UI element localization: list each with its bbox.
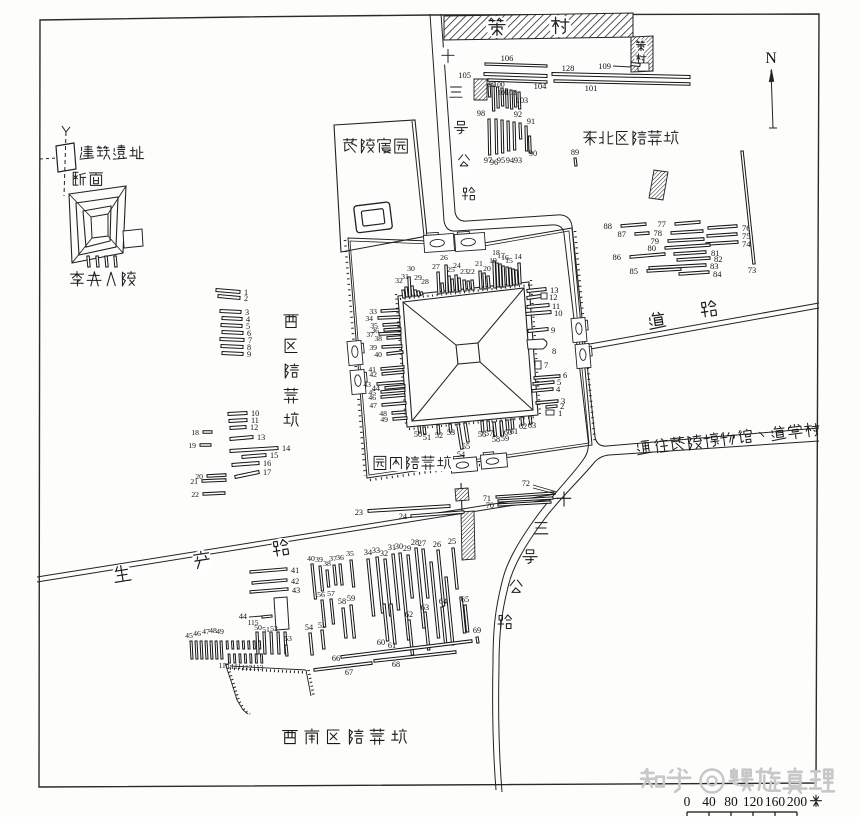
- svg-text:62: 62: [405, 610, 413, 619]
- svg-text:29: 29: [403, 544, 411, 553]
- svg-text:0: 0: [684, 794, 691, 809]
- svg-text:128: 128: [562, 63, 575, 73]
- svg-text:27: 27: [418, 539, 426, 548]
- svg-text:40: 40: [307, 554, 315, 563]
- svg-text:53: 53: [284, 634, 292, 643]
- svg-text:200: 200: [787, 794, 808, 809]
- svg-text:73: 73: [748, 265, 757, 275]
- svg-text:8: 8: [552, 346, 556, 356]
- svg-text:90: 90: [529, 149, 537, 158]
- svg-text:30: 30: [395, 542, 403, 551]
- svg-text:19: 19: [188, 441, 196, 450]
- svg-text:14: 14: [282, 444, 290, 453]
- svg-text:N: N: [765, 50, 777, 67]
- svg-text:59: 59: [347, 594, 355, 603]
- svg-text:38: 38: [374, 334, 382, 343]
- svg-text:15: 15: [505, 256, 513, 265]
- svg-text:106: 106: [501, 53, 514, 63]
- svg-text:89: 89: [571, 148, 579, 157]
- svg-text:51: 51: [423, 433, 431, 442]
- svg-text:35: 35: [346, 549, 354, 558]
- svg-text:70: 70: [486, 501, 494, 510]
- svg-text:120: 120: [743, 794, 764, 809]
- svg-text:17: 17: [263, 468, 271, 477]
- svg-text:13: 13: [257, 433, 265, 442]
- svg-text:10: 10: [554, 308, 563, 318]
- svg-text:63: 63: [421, 603, 429, 612]
- svg-text:88: 88: [604, 221, 613, 231]
- svg-text:26: 26: [433, 540, 441, 549]
- svg-text:160: 160: [765, 794, 786, 809]
- svg-text:98: 98: [477, 109, 485, 118]
- svg-text:32: 32: [380, 549, 388, 558]
- svg-text:39: 39: [315, 555, 323, 564]
- svg-text:28: 28: [421, 277, 429, 286]
- svg-text:15: 15: [270, 451, 278, 460]
- svg-text:22: 22: [191, 490, 199, 499]
- svg-text:101: 101: [585, 83, 598, 93]
- svg-text:47: 47: [369, 401, 377, 410]
- svg-text:86: 86: [613, 252, 622, 262]
- svg-text:21: 21: [190, 477, 198, 486]
- svg-text:27: 27: [432, 262, 440, 271]
- svg-text:49: 49: [216, 627, 224, 636]
- svg-text:94: 94: [506, 156, 514, 165]
- svg-text:65: 65: [461, 595, 469, 604]
- svg-text:58: 58: [338, 597, 346, 606]
- svg-text:43: 43: [292, 586, 300, 595]
- svg-text:104: 104: [534, 81, 548, 91]
- svg-text:91: 91: [527, 117, 535, 126]
- svg-text:25: 25: [448, 537, 456, 546]
- svg-text:57: 57: [327, 589, 335, 598]
- svg-text:14: 14: [514, 252, 522, 261]
- svg-text:20: 20: [483, 264, 491, 273]
- svg-text:56: 56: [317, 590, 325, 599]
- svg-text:46: 46: [193, 629, 201, 638]
- svg-text:50: 50: [254, 623, 262, 632]
- svg-text:44: 44: [372, 384, 380, 393]
- svg-text:54: 54: [457, 450, 465, 459]
- svg-text:51: 51: [262, 625, 270, 634]
- svg-text:85: 85: [630, 266, 639, 276]
- svg-text:16: 16: [263, 459, 271, 468]
- svg-text:69: 69: [473, 626, 481, 635]
- svg-text:105: 105: [458, 70, 471, 80]
- svg-text:19: 19: [489, 256, 497, 265]
- svg-text:40: 40: [374, 350, 382, 359]
- svg-text:2: 2: [244, 294, 248, 303]
- svg-text:45: 45: [185, 631, 193, 640]
- svg-text:44: 44: [239, 612, 247, 621]
- svg-text:41: 41: [291, 566, 299, 575]
- svg-text:55: 55: [462, 442, 470, 451]
- svg-text:30: 30: [407, 264, 415, 273]
- svg-text:80: 80: [648, 243, 657, 253]
- svg-text:60: 60: [377, 638, 385, 647]
- svg-text:34: 34: [364, 548, 372, 557]
- svg-text:63: 63: [528, 421, 536, 430]
- svg-text:26: 26: [440, 253, 448, 262]
- svg-text:50: 50: [414, 430, 422, 439]
- svg-text:18: 18: [191, 428, 199, 437]
- svg-text:52: 52: [270, 624, 278, 633]
- svg-text:93: 93: [514, 156, 522, 165]
- svg-text:6: 6: [563, 370, 567, 380]
- svg-text:24: 24: [399, 512, 407, 521]
- svg-text:53: 53: [447, 428, 455, 437]
- svg-text:36: 36: [336, 553, 344, 562]
- svg-text:52: 52: [435, 431, 443, 440]
- svg-text:61: 61: [510, 427, 518, 436]
- svg-text:92: 92: [514, 110, 522, 119]
- svg-text:72: 72: [522, 479, 530, 488]
- svg-text:9: 9: [247, 350, 251, 359]
- svg-text:37: 37: [366, 330, 374, 339]
- svg-text:33: 33: [372, 546, 380, 555]
- svg-text:109: 109: [598, 61, 611, 71]
- svg-text:42: 42: [291, 577, 299, 586]
- svg-text:87: 87: [618, 229, 627, 239]
- svg-text:31: 31: [401, 272, 409, 281]
- svg-text:62: 62: [519, 422, 527, 431]
- svg-text:68: 68: [392, 660, 400, 669]
- svg-text:80: 80: [724, 794, 738, 809]
- svg-text:9: 9: [551, 325, 555, 335]
- svg-text:42: 42: [369, 370, 377, 379]
- svg-text:67: 67: [345, 668, 353, 677]
- svg-text:103: 103: [516, 96, 528, 105]
- svg-text:66: 66: [332, 654, 340, 663]
- svg-text:1: 1: [558, 408, 562, 418]
- svg-text:22: 22: [467, 267, 475, 276]
- svg-text:12: 12: [250, 423, 258, 432]
- svg-text:40: 40: [702, 794, 716, 809]
- svg-text:21: 21: [475, 259, 483, 268]
- svg-text:95: 95: [497, 156, 505, 165]
- svg-text:23: 23: [355, 508, 363, 517]
- svg-text:49: 49: [380, 415, 388, 424]
- svg-text:7: 7: [544, 360, 548, 370]
- svg-text:64: 64: [439, 597, 447, 606]
- svg-text:54: 54: [305, 623, 313, 632]
- svg-text:84: 84: [713, 269, 722, 279]
